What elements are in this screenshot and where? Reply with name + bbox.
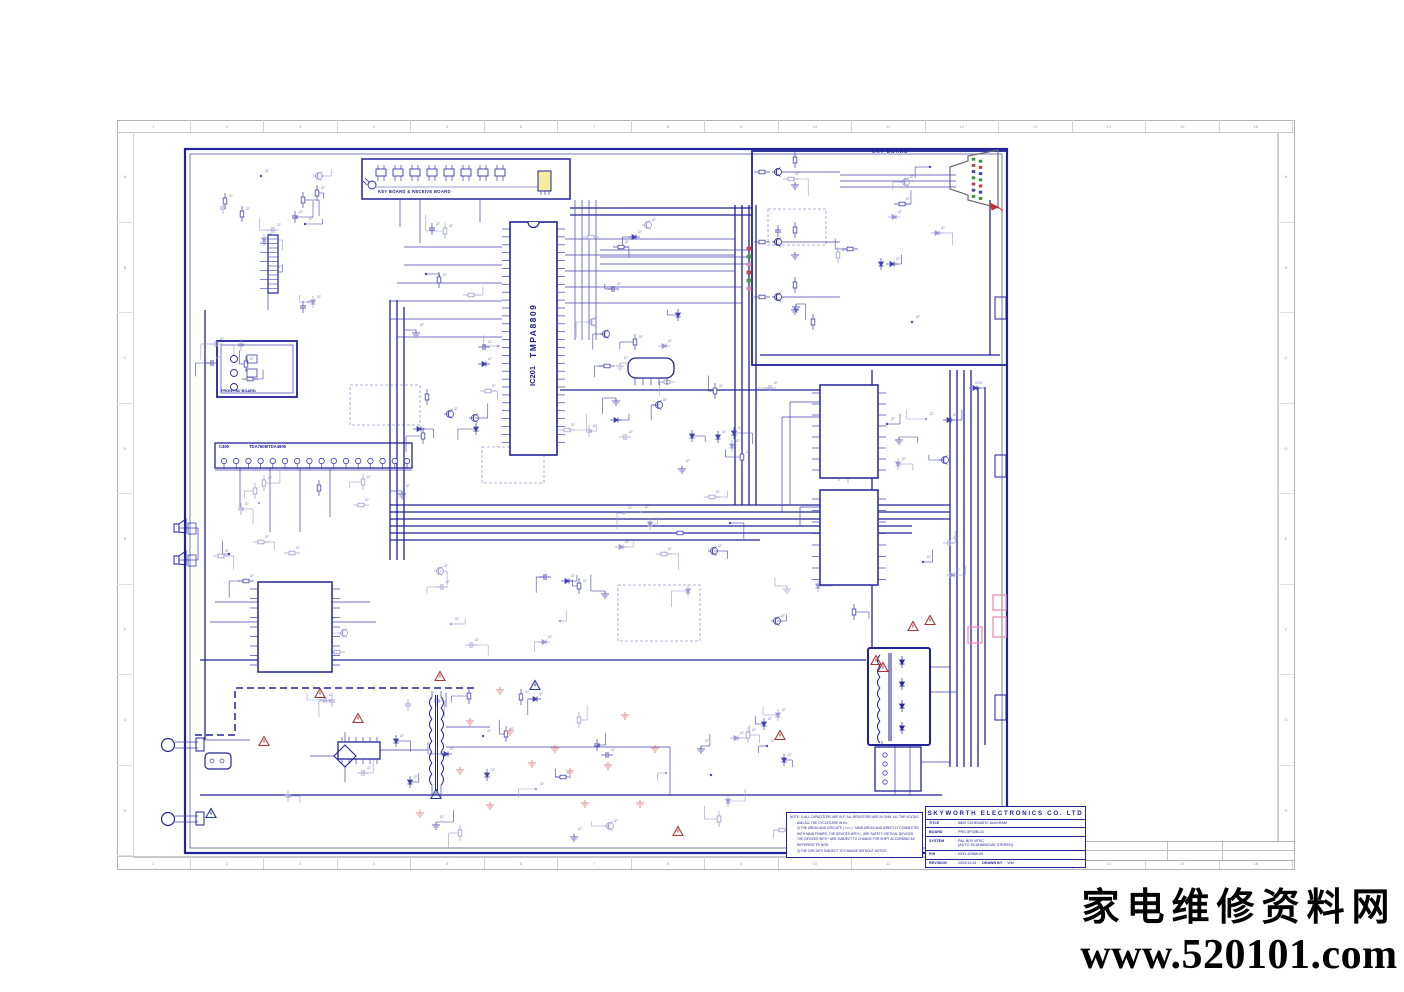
pn-value: 0531-42568-00 xyxy=(958,852,983,857)
system-label: SYSTEM xyxy=(929,839,953,849)
zone-letter: G xyxy=(1278,675,1294,766)
board-value: PRO-5P30B-03 xyxy=(958,830,984,835)
zone-number: 15 xyxy=(1146,120,1220,132)
zone-letter: D xyxy=(117,404,133,495)
zone-number: 6 xyxy=(485,120,559,132)
watermark: 家电维修资料网 www.520101.com xyxy=(1078,882,1400,977)
zone-number: 9 xyxy=(705,120,779,132)
zone-letter: E xyxy=(1278,494,1294,585)
revision-row: REVISION : 2003/11/15 DRAWN BY : WM xyxy=(926,860,1085,868)
zone-number: 16 xyxy=(1220,120,1294,132)
zone-number: 11 xyxy=(852,120,926,132)
zone-number: 10 xyxy=(779,120,853,132)
zone-letter: C xyxy=(117,313,133,404)
note-line: 3) THE CIRCUITS SUBJECT TO CHANGE WITHOU… xyxy=(790,849,919,855)
front-av-jacks xyxy=(231,355,258,391)
zone-letter: A xyxy=(1278,132,1294,223)
crt-tube-symbol xyxy=(950,150,1003,211)
zone-letter: H xyxy=(117,766,133,857)
pn-row: P/N : 0531-42568-00 xyxy=(926,851,1085,860)
zone-letter: G xyxy=(117,675,133,766)
page: { "sheet": { "zone_numbers": ["1","2","3… xyxy=(0,0,1404,992)
sheet-title-block-divider xyxy=(1167,842,1168,860)
zone-letter: F xyxy=(117,585,133,676)
zone-letter: E xyxy=(117,494,133,585)
title-row: TITLE : 8809 SCHEMATIC DIAGRAM xyxy=(926,820,1085,829)
front-av-board-label: FRONT AV BOARD xyxy=(221,388,256,393)
zone-strip-top: 12345678910111213141516 xyxy=(117,120,1293,133)
system-value-2: (AUTO SCANNING/AV STEREO) xyxy=(958,843,1013,848)
watermark-chinese: 家电维修资料网 xyxy=(1078,882,1400,933)
zone-number: 8 xyxy=(632,120,706,132)
pn-label: P/N xyxy=(929,852,953,857)
smps-transformer xyxy=(430,691,444,797)
zone-number: 1 xyxy=(117,120,191,132)
zone-letter: D xyxy=(1278,404,1294,495)
bus-layer xyxy=(200,200,1000,795)
title-label: TITLE xyxy=(929,821,953,826)
zone-number: 4 xyxy=(338,120,412,132)
sheet-title-block-divider xyxy=(1222,842,1223,860)
note-line: NOTE: 1) ALL CAPACITORS ARE IN P, ALL RE… xyxy=(790,815,919,821)
drawnby-label: DRAWN BY xyxy=(982,861,1002,866)
zone-number: 5 xyxy=(411,120,485,132)
flyback-transformer xyxy=(868,648,930,745)
watermark-url: www.520101.com xyxy=(1078,933,1400,977)
crt-board-label: CRT BOARD xyxy=(872,149,909,154)
note-line: 2) THE AREAS AND CIRCUITS ( ━━━ ) : MAIN… xyxy=(790,826,919,832)
zone-strip-right: ABCDEFGH xyxy=(1277,132,1294,856)
system-row: SYSTEM : PAL BG/I NTSC (AUTO SCANNING/AV… xyxy=(926,837,1085,851)
zone-number: 7 xyxy=(558,120,632,132)
hot-grounds xyxy=(416,687,659,817)
side-ics xyxy=(250,358,886,764)
company-name: SKYWORTH ELECTRONICS CO. LTD xyxy=(926,807,1085,820)
zone-letter: F xyxy=(1278,585,1294,676)
schematic-drawing xyxy=(150,147,1010,859)
board-label: BOARD xyxy=(929,830,953,835)
notes-block: NOTE: 1) ALL CAPACITORS ARE IN P, ALL RE… xyxy=(786,812,923,858)
zone-letter: A xyxy=(117,132,133,223)
zone-strip-left: ABCDEFGH xyxy=(117,132,134,856)
revision-value: 2003/11/15 xyxy=(958,861,976,866)
revision-label: REVISION xyxy=(929,861,953,866)
edge-connectors xyxy=(162,247,1007,826)
tuner-connector xyxy=(260,235,278,293)
zone-number: 13 xyxy=(999,120,1073,132)
zone-number: 2 xyxy=(191,120,265,132)
zone-letter: B xyxy=(117,223,133,314)
drawnby-value: WM xyxy=(1007,861,1014,866)
audio-connector-part-label: TDA7608/TDA4905 xyxy=(249,444,286,449)
keyboard-board-label: KEY BOARD & RECEIVE BOARD xyxy=(378,189,451,194)
zone-number: 14 xyxy=(1073,120,1147,132)
audio-connector-ref-label: C400 xyxy=(219,444,229,449)
ic201-ref-label: IC201 xyxy=(528,360,537,386)
title-value: 8809 SCHEMATIC DIAGRAM xyxy=(958,821,1007,826)
ic201-part-label: TMPA8809 xyxy=(528,298,538,358)
zone-letter: C xyxy=(1278,313,1294,404)
board-row: BOARD : PRO-5P30B-03 xyxy=(926,828,1085,837)
zone-letter: B xyxy=(1278,223,1294,314)
title-block: SKYWORTH ELECTRONICS CO. LTD TITLE : 880… xyxy=(925,806,1086,868)
zone-number: 12 xyxy=(926,120,1000,132)
zone-number: 3 xyxy=(264,120,338,132)
